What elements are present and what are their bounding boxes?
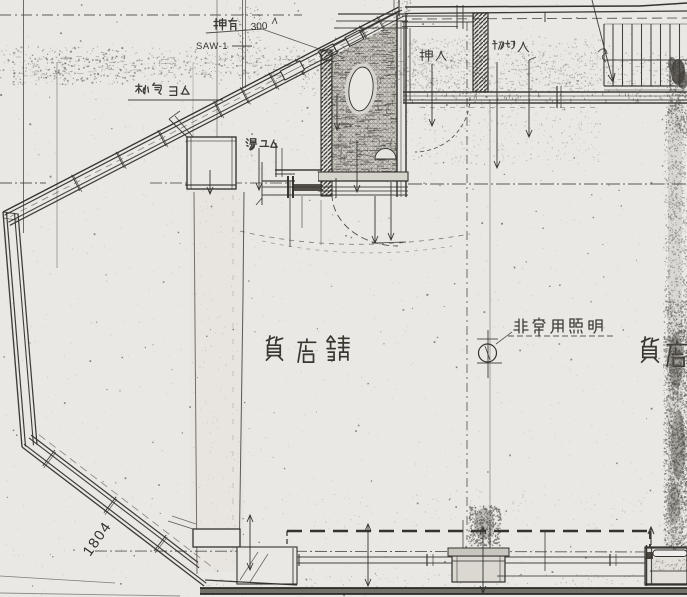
svg-text:300: 300 (250, 21, 268, 33)
svg-text:SAW-1: SAW-1 (196, 41, 228, 52)
